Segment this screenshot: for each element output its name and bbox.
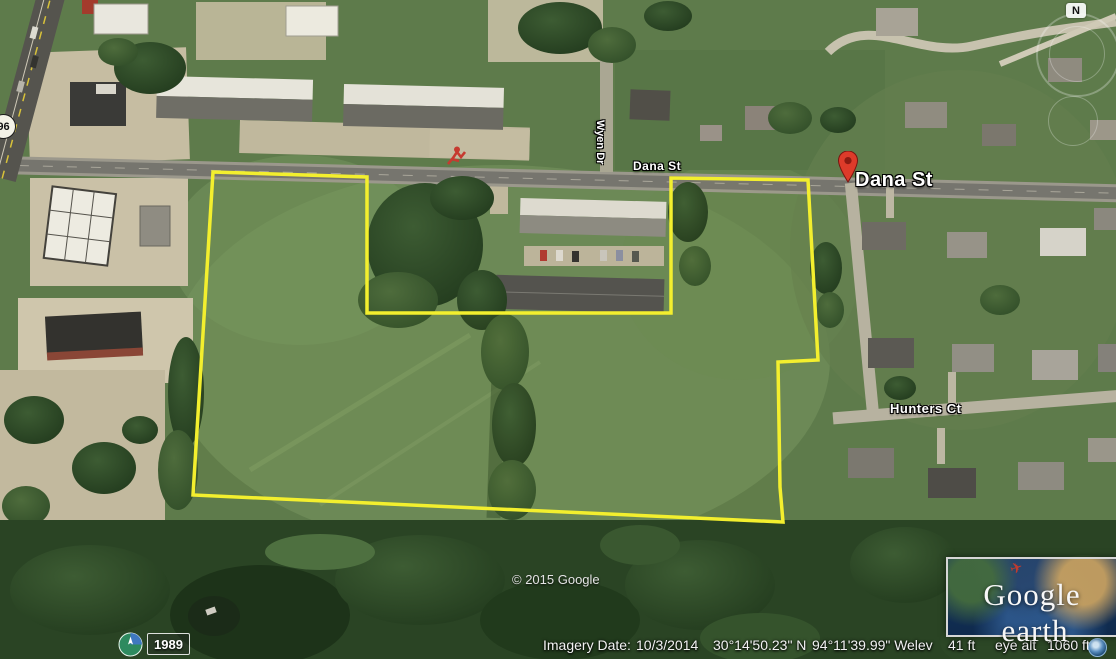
history-clock-icon[interactable] [118,632,143,659]
logo-brand: Google [983,577,1080,612]
imagery-year-box[interactable]: 1989 [147,633,190,655]
google-earth-logo: ✈ Google earth [946,557,1116,637]
road-incident-icon[interactable] [446,145,466,172]
move-joystick[interactable] [1048,96,1098,146]
logo-product: earth [1002,613,1069,648]
longitude-readout: 94°11'39.99" W [812,637,907,653]
street-label-wyen-dr: Wyen Dr [594,120,606,164]
elevation-label: elev [907,637,933,653]
street-label-dana-st: Dana St [633,159,681,173]
logo-plane-icon: ✈ [1008,557,1026,578]
placemark-label[interactable]: Dana St [855,169,933,192]
look-joystick[interactable] [1049,26,1105,82]
imagery-date-value: 10/3/2014 [636,637,698,653]
google-earth-window: 96 Dana St Wyen Dr Hunters Ct Dana St N … [0,0,1116,659]
latitude-readout: 30°14'50.23" N [713,637,806,653]
imagery-date-label: Imagery Date: [543,637,631,653]
north-button[interactable]: N [1066,3,1086,18]
street-label-hunters-ct: Hunters Ct [890,401,961,416]
copyright-notice: © 2015 Google [512,572,600,587]
